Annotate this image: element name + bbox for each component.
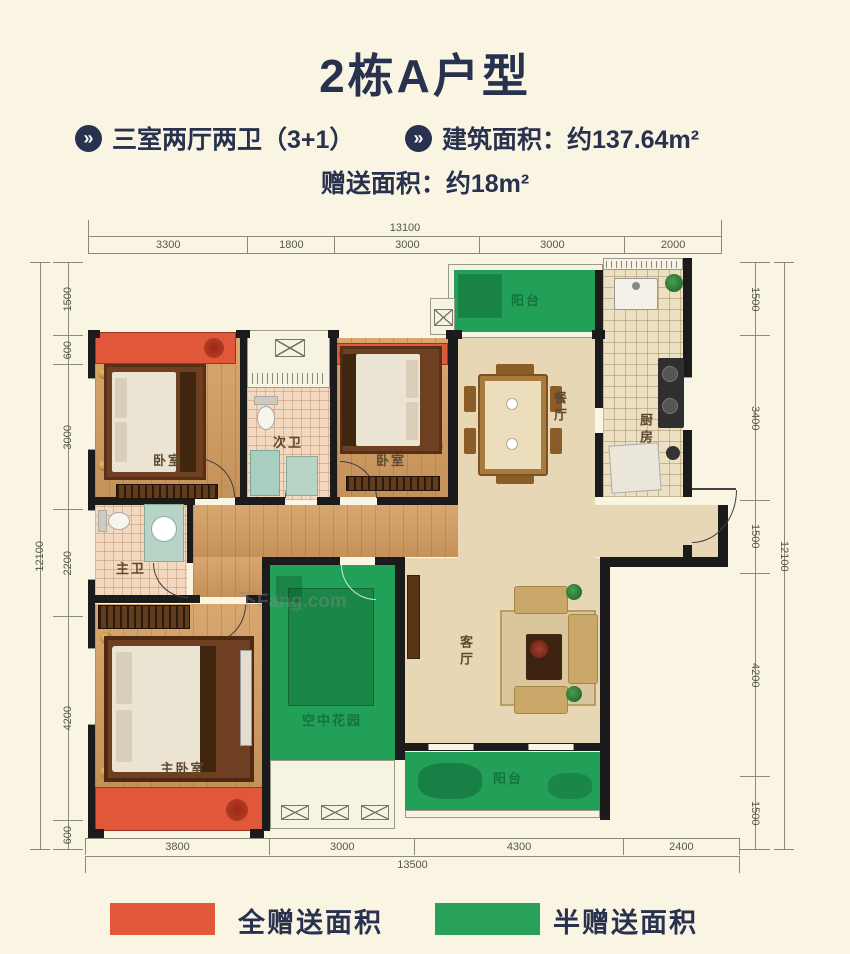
pot <box>666 446 680 460</box>
room-label-master: 主卧室 <box>133 758 233 777</box>
dresser <box>116 484 218 499</box>
plate <box>506 398 518 410</box>
dim-segment: 2000 <box>624 237 721 254</box>
room-label-bath-master: 主卫 <box>96 558 166 577</box>
tv-cabinet <box>240 650 252 746</box>
feature-area: » 建筑面积：约137.64m² <box>405 120 699 156</box>
dim-segment: 1500 <box>740 500 770 573</box>
floorplan-flyer: { "header": { "title": "2栋A户型", "bullet_… <box>0 0 850 954</box>
pillow <box>406 402 418 440</box>
room-label-living: 客厅 <box>456 620 475 684</box>
burner <box>662 366 678 382</box>
room-label-bedroom2: 卧室 <box>351 450 431 469</box>
kitchen-window <box>603 258 683 270</box>
dimension-left-total: 12100 <box>30 262 50 850</box>
entry-hall-floor <box>458 505 718 557</box>
bed-footboard <box>200 646 216 772</box>
dim-segment: 600 <box>53 820 83 849</box>
sink <box>151 516 177 542</box>
dim-segment: 4200 <box>53 616 83 820</box>
wall-segment <box>240 330 247 505</box>
wall-segment <box>683 545 692 557</box>
window-hatch <box>606 261 680 268</box>
shelf-hatch <box>252 373 325 384</box>
wall-segment <box>448 335 458 497</box>
flower-motif <box>226 799 248 821</box>
bay-window-master <box>95 787 264 831</box>
plant <box>566 686 582 702</box>
flower-motif <box>204 338 224 358</box>
room-label-dining: 餐厅 <box>550 376 569 440</box>
plant <box>665 274 683 292</box>
page-title: 2栋A户型 <box>0 40 850 106</box>
room-label-sky-garden: 空中花园 <box>271 710 393 729</box>
chair <box>464 428 476 454</box>
dim-segment: 600 <box>53 335 83 364</box>
wall-segment <box>683 258 692 377</box>
balcony-plant <box>548 773 592 799</box>
dim-segment: 3300 <box>88 237 247 254</box>
dimension-top-segments: 3300 1800 3000 3000 2000 <box>88 237 722 254</box>
dim-segment: 13500 <box>85 856 739 873</box>
feature-rooms: » 三室两厅两卫（3+1） <box>75 120 354 156</box>
dim-segment: 1500 <box>740 262 770 335</box>
window <box>528 744 574 750</box>
hallway-floor <box>193 505 458 557</box>
dim-segment: 1500 <box>53 262 83 335</box>
wall-segment <box>683 430 692 497</box>
balcony-sill <box>405 810 600 818</box>
burner <box>662 398 678 414</box>
vent-x-icon <box>281 805 309 820</box>
toilet <box>257 406 275 430</box>
dresser <box>346 476 440 491</box>
vent-x-icon <box>321 805 349 820</box>
bay-window-bedroom1 <box>95 332 236 364</box>
bed-footboard <box>342 354 356 446</box>
dimension-left-segments: 1500 600 3000 2200 4200 600 <box>53 262 83 850</box>
dimension-right-total: 12100 <box>774 262 794 850</box>
pillow <box>406 360 418 398</box>
pillow <box>116 652 132 704</box>
room-label-balcony-bottom: 阳台 <box>468 768 548 787</box>
dim-segment: 1500 <box>740 776 770 849</box>
pillow <box>115 378 127 418</box>
wardrobe <box>98 605 190 629</box>
dim-segment: 13100 <box>88 220 721 237</box>
vanity <box>286 456 318 496</box>
faucet <box>632 282 640 290</box>
wall-segment <box>330 330 337 505</box>
dim-segment: 12100 <box>30 262 50 849</box>
sofa <box>568 614 598 684</box>
double-arrow-icon: » <box>405 125 432 152</box>
wall-segment <box>395 745 405 759</box>
wall-segment <box>600 557 610 820</box>
dimension-right-segments: 1500 3400 1500 4200 1500 <box>740 262 770 850</box>
wall-segment <box>595 270 603 408</box>
table-cloth <box>485 381 541 469</box>
wall-segment <box>600 557 728 567</box>
double-arrow-icon: » <box>75 125 102 152</box>
wall-segment <box>395 557 405 760</box>
pillow <box>116 710 132 762</box>
sofa <box>514 686 568 714</box>
sofa <box>514 586 568 614</box>
window <box>88 378 95 450</box>
garden-sill-strip <box>270 760 395 829</box>
legend-label-full-gift: 全赠送面积 <box>238 901 383 940</box>
room-label-bedroom1: 卧室 <box>128 450 208 469</box>
wall-segment <box>262 557 340 565</box>
vent-x-icon <box>361 805 389 820</box>
bonus-area-label: 赠送面积：约18m² <box>0 164 850 200</box>
window <box>683 377 692 432</box>
flower-vase <box>530 640 548 658</box>
pillow <box>115 422 127 462</box>
watermark: 下Fang.com <box>238 586 347 613</box>
toilet-tank <box>254 396 278 405</box>
feature-area-label: 建筑面积：约137.64m² <box>442 120 699 156</box>
plant <box>566 584 582 600</box>
window <box>88 648 95 725</box>
floorplan-canvas: 卧室 次卫 卧室 餐厅 阳台 厨房 主卫 主卧室 空中花园 客厅 阳台 下Fan… <box>88 258 728 853</box>
shaft-x-icon <box>275 339 305 357</box>
window <box>428 744 474 750</box>
dim-segment: 3000 <box>479 237 624 254</box>
dim-segment: 2200 <box>53 509 83 616</box>
chair <box>464 386 476 412</box>
closet-shaft <box>247 330 330 388</box>
toilet-tank <box>98 510 107 532</box>
dimension-bottom-total: 13500 <box>85 856 740 873</box>
hall-cabinet <box>407 575 420 659</box>
feature-rooms-label: 三室两厅两卫（3+1） <box>112 120 354 156</box>
legend-swatch-full-gift <box>110 903 215 935</box>
dim-segment: 3400 <box>740 335 770 500</box>
plate <box>506 438 518 450</box>
shower <box>250 450 280 496</box>
room-label-balcony-top: 阳台 <box>481 290 571 309</box>
dim-segment: 12100 <box>774 262 794 849</box>
dim-segment: 4200 <box>740 573 770 777</box>
dim-segment: 3000 <box>334 237 479 254</box>
wall-segment <box>595 433 603 497</box>
door-arc-entry <box>692 490 737 543</box>
dim-segment: 3000 <box>53 364 83 510</box>
room-label-bath2: 次卫 <box>253 432 323 451</box>
wall-segment <box>377 497 458 505</box>
shaft-x-icon <box>434 309 453 326</box>
legend-label-half-gift: 半赠送面积 <box>553 901 698 940</box>
window <box>88 510 95 580</box>
wall-segment <box>187 500 193 563</box>
toilet <box>108 512 130 530</box>
dim-segment: 1800 <box>247 237 334 254</box>
dimension-top-total: 13100 <box>88 220 722 237</box>
room-label-kitchen: 厨房 <box>636 398 655 462</box>
legend-swatch-half-gift <box>435 903 540 935</box>
